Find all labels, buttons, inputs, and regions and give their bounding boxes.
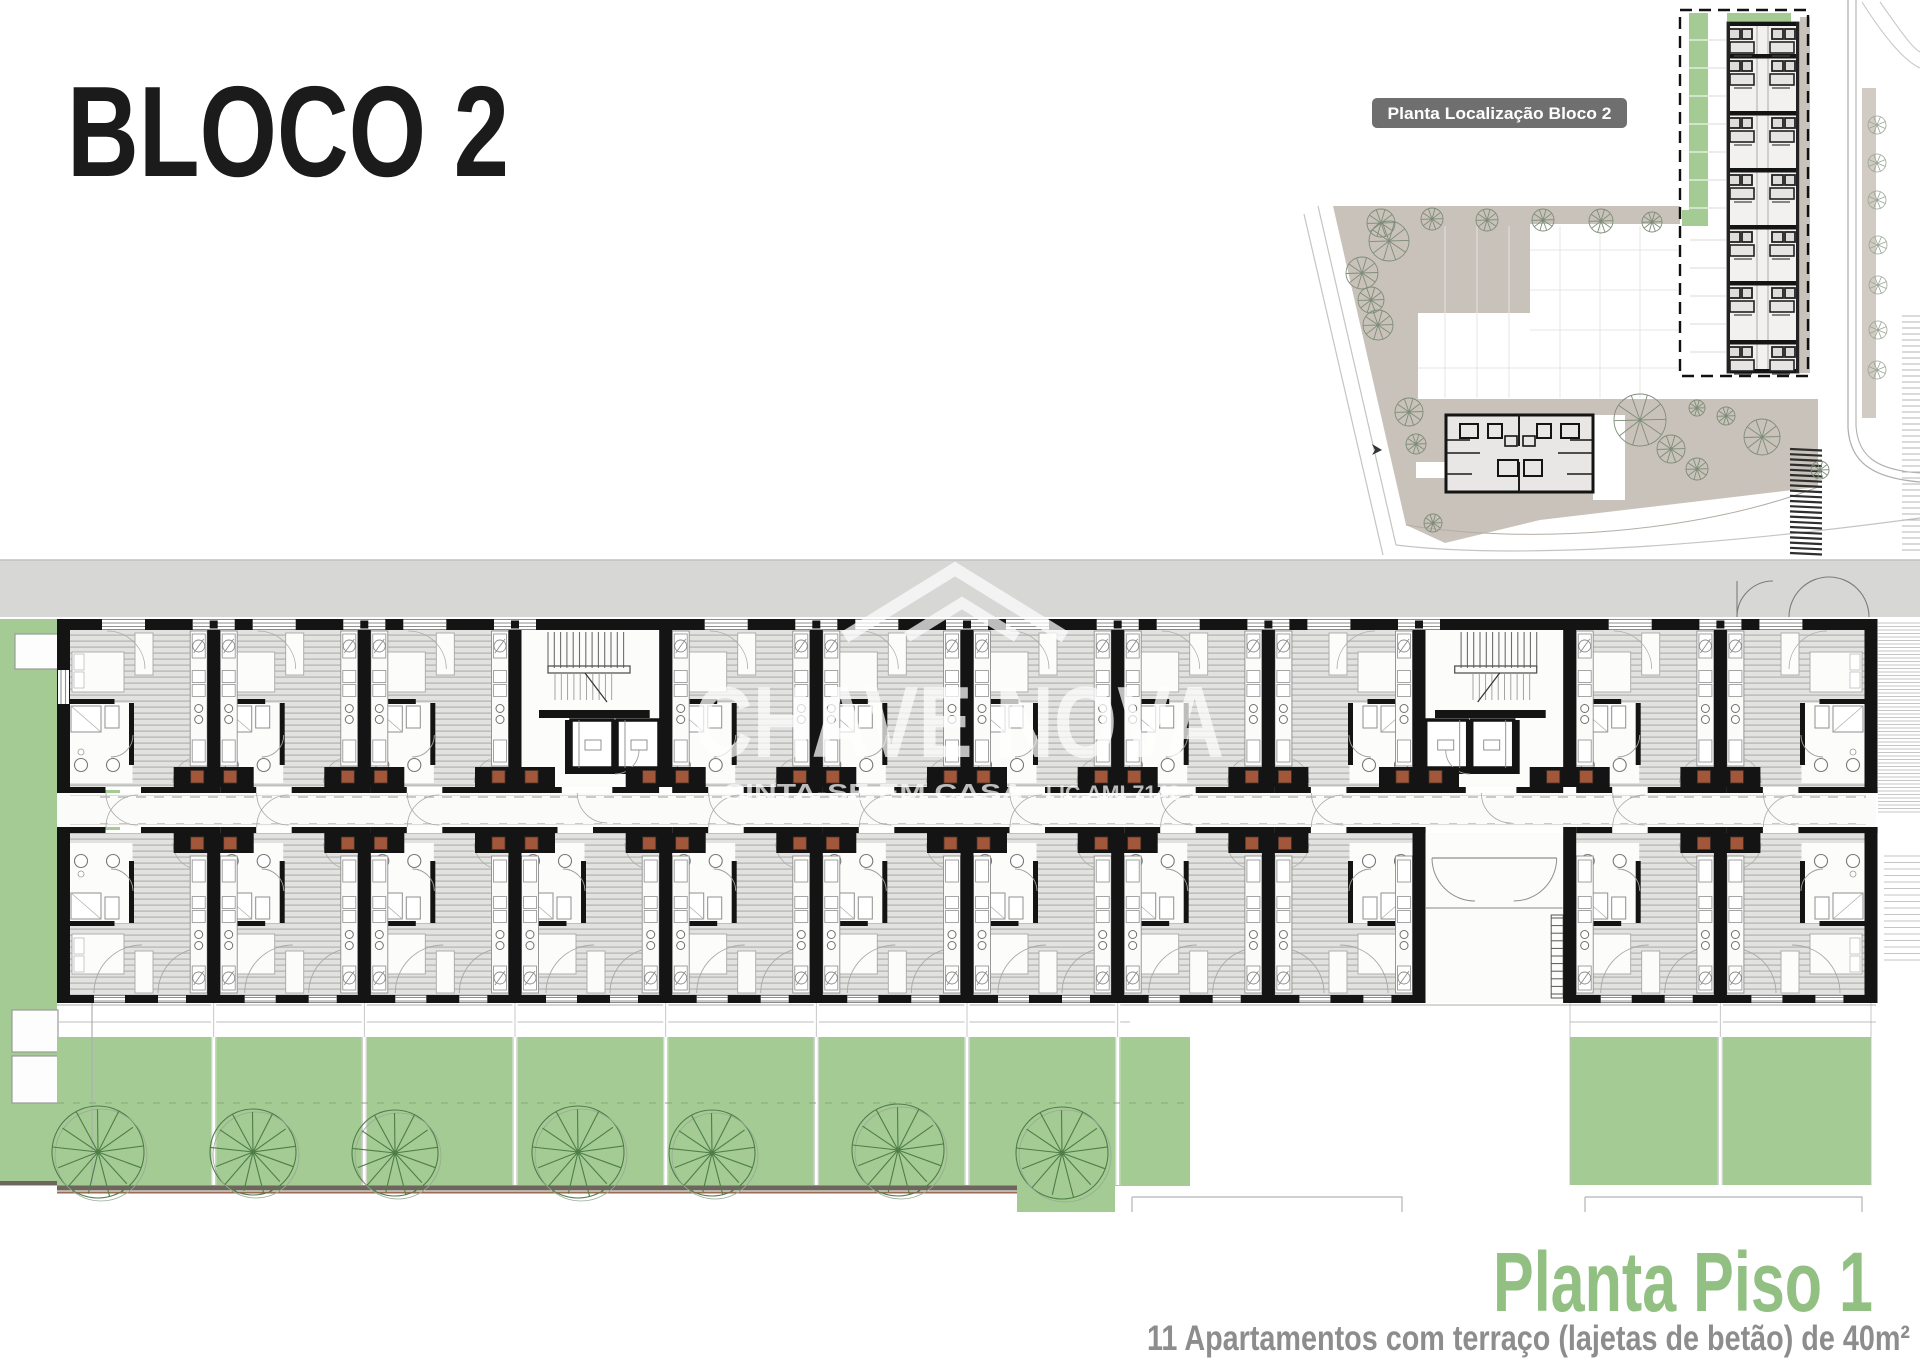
svg-text:BLOCO 2: BLOCO 2 bbox=[67, 60, 509, 204]
svg-text:SINTA-SE EM CASA: SINTA-SE EM CASA bbox=[724, 779, 1024, 805]
svg-text:11 Apartamentos com terraço (l: 11 Apartamentos com terraço (lajetas de … bbox=[1147, 1319, 1910, 1358]
svg-text:Planta Localização Bloco 2: Planta Localização Bloco 2 bbox=[1388, 105, 1612, 123]
svg-text:Planta Piso 1: Planta Piso 1 bbox=[1493, 1235, 1873, 1329]
svg-text:CHAVE NOVA: CHAVE NOVA bbox=[694, 667, 1224, 779]
svg-text:LIC.AMI-7142: LIC.AMI-7142 bbox=[1046, 782, 1180, 805]
